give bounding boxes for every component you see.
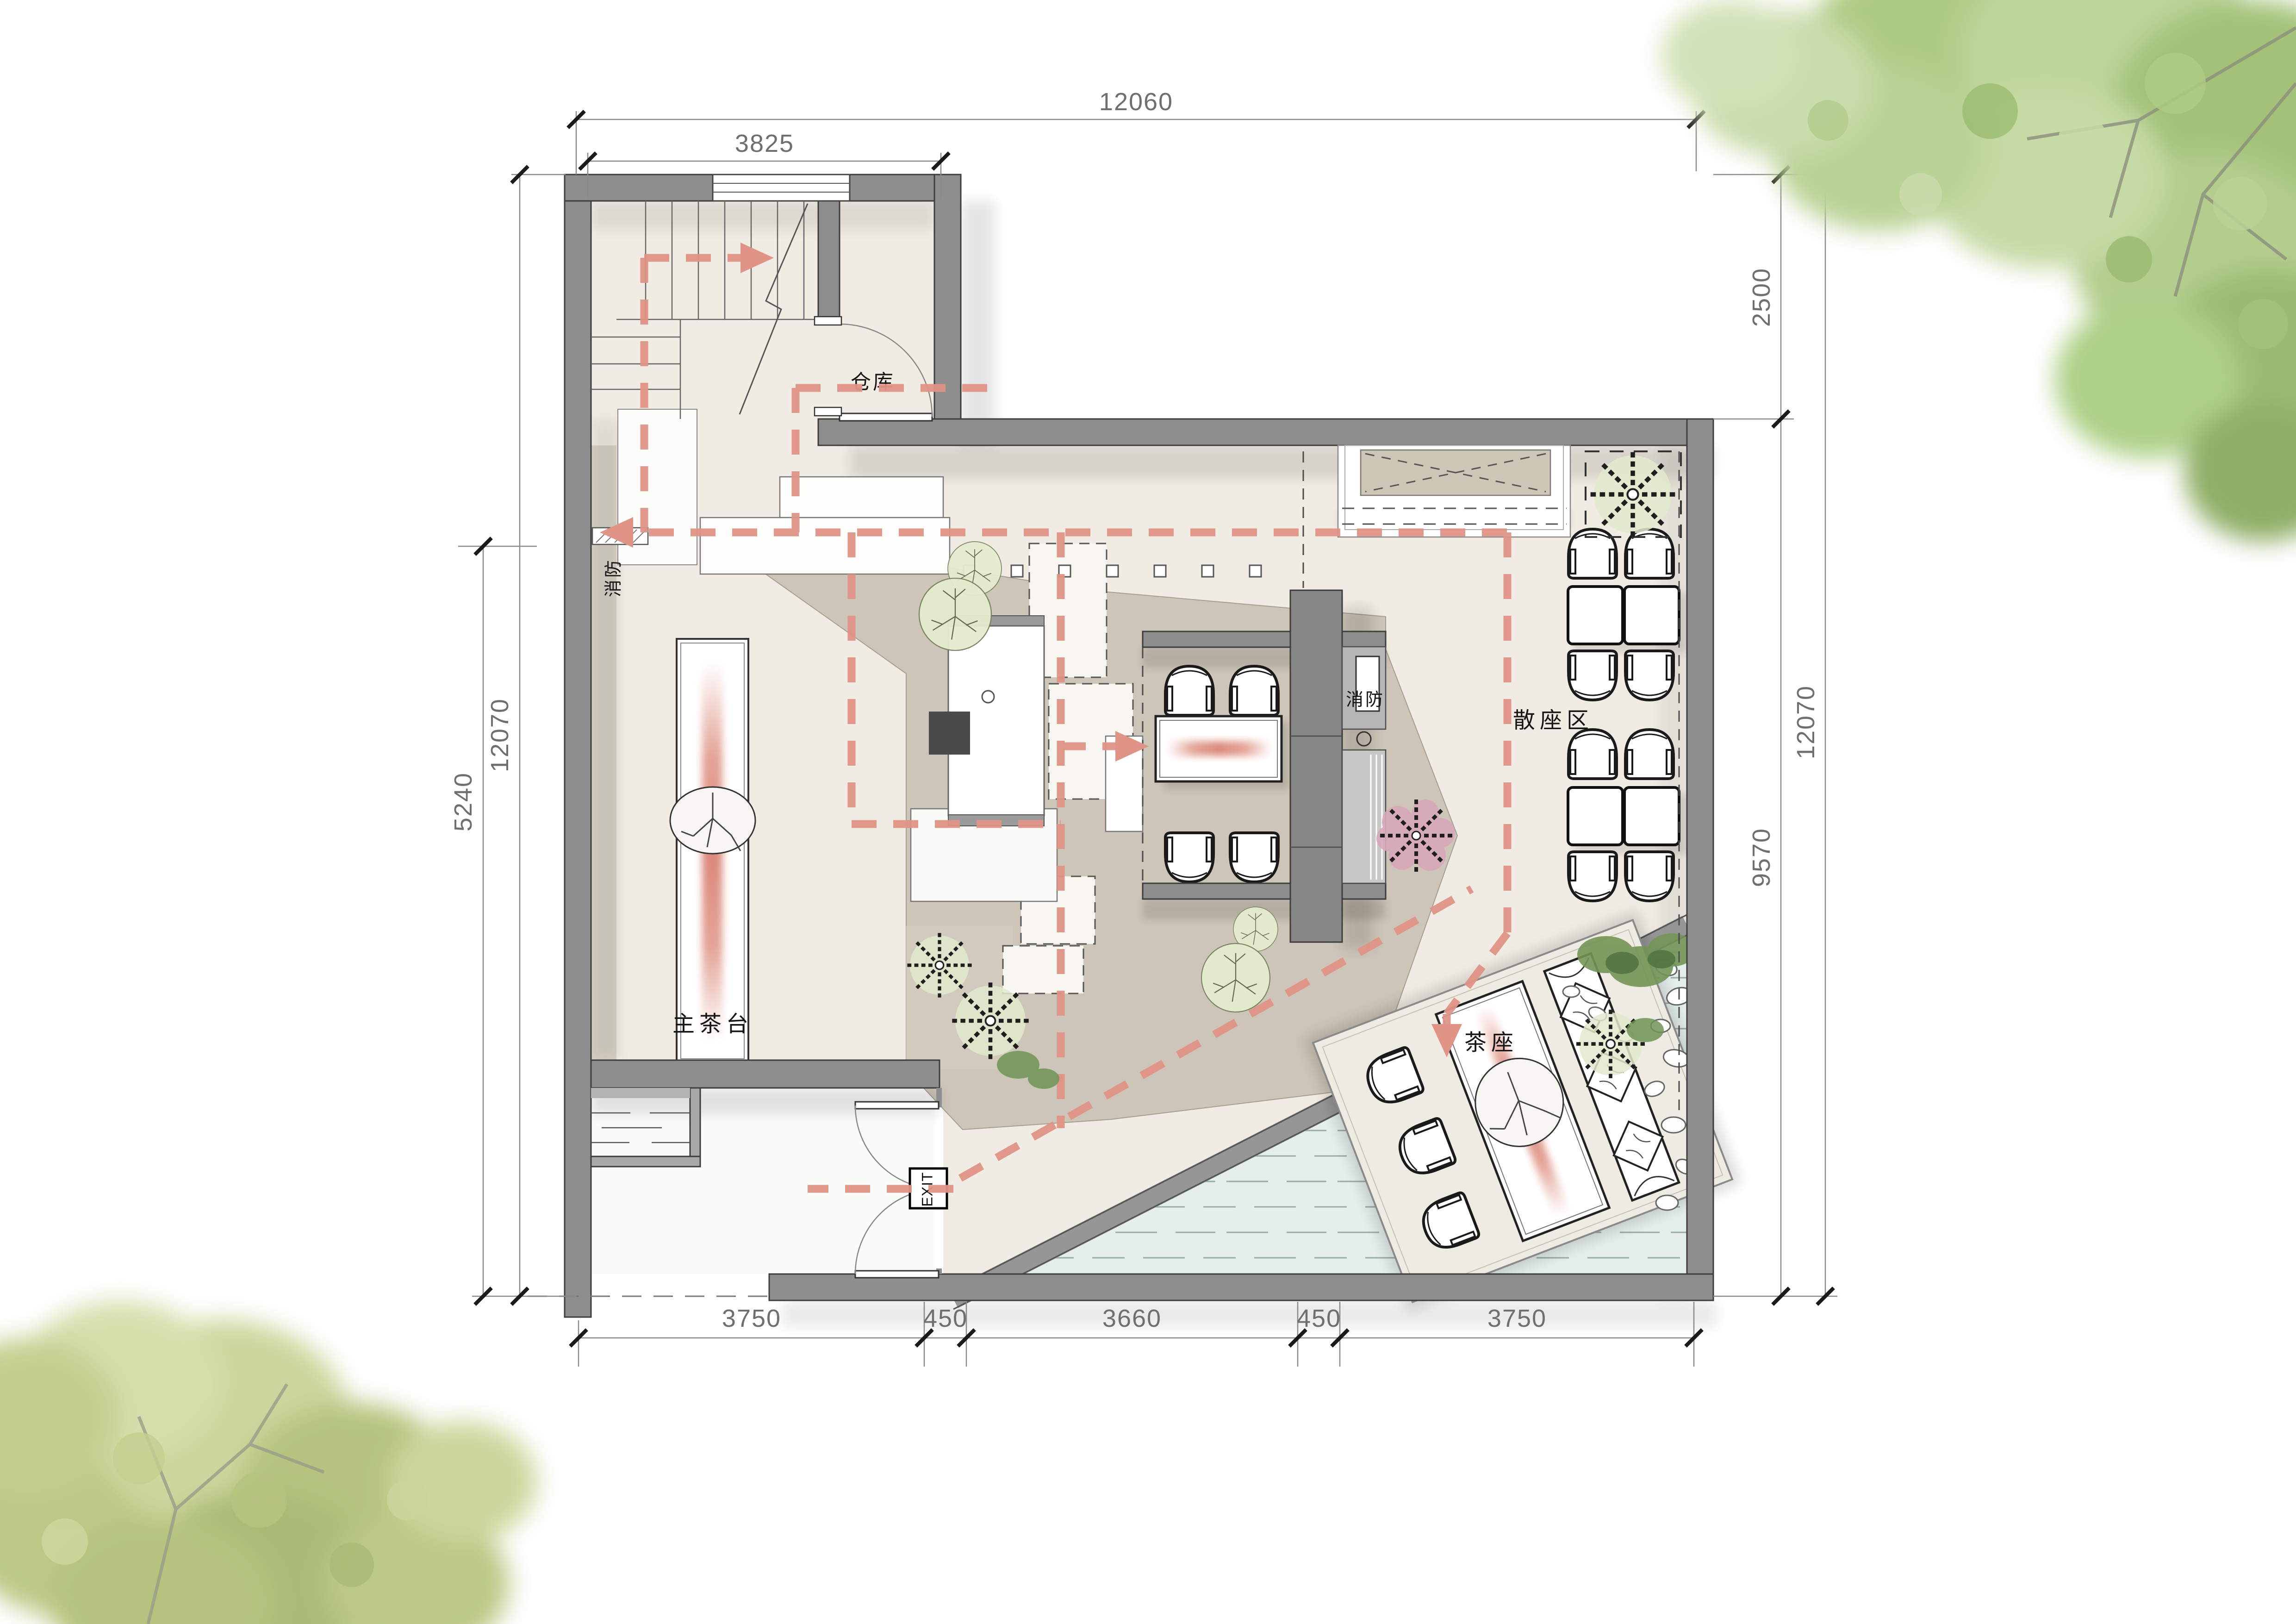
- stove: [929, 712, 970, 755]
- storage-door-leaf: [840, 413, 932, 421]
- floor-plan-drawing: 主茶台 散座区 茶座: [0, 0, 2296, 1624]
- fire-wall-label: 消防: [604, 558, 623, 597]
- main-tea-counter: 主茶台: [670, 639, 755, 1063]
- exit-door-leaf-bottom: [855, 1271, 939, 1278]
- dim-right-lower: 9570: [1748, 828, 1775, 887]
- dim-top-total: 12060: [1099, 88, 1173, 116]
- dim-left-outer: 12070: [486, 698, 514, 772]
- stair-opening: [713, 175, 850, 201]
- dim-right-upper: 2500: [1748, 268, 1775, 327]
- dim-bottom-3: 3660: [1102, 1305, 1162, 1332]
- dim-left-inner: 5240: [449, 772, 477, 831]
- floor-plan-sheet: 主茶台 散座区 茶座: [0, 0, 2296, 1624]
- exit-door-leaf-top: [855, 1102, 939, 1109]
- dim-bottom-5: 3750: [1487, 1305, 1547, 1332]
- service-counter: [780, 477, 943, 518]
- dim-top-left: 3825: [735, 130, 794, 157]
- fire-cabinet-label: 消防: [1346, 690, 1385, 710]
- main-tea-counter-label: 主茶台: [672, 1012, 753, 1037]
- dim-bottom-2: 450: [923, 1305, 968, 1332]
- column: [1290, 590, 1342, 942]
- open-seating-label: 散座区: [1513, 708, 1593, 733]
- canopy-bottom-left: [0, 1301, 537, 1624]
- glass-door: [1342, 750, 1386, 883]
- wall-right: [1687, 419, 1713, 1300]
- dim-right-outer: 12070: [1792, 685, 1820, 759]
- wall-top: [818, 419, 1713, 445]
- dim-bottom-1: 3750: [722, 1305, 781, 1332]
- entry-porch-floor: [591, 1088, 935, 1274]
- service-counter-2: [700, 518, 950, 574]
- dim-bottom-4: 450: [1297, 1305, 1341, 1332]
- wall-left: [565, 175, 591, 1317]
- tea-seating-label: 茶座: [1464, 1031, 1518, 1055]
